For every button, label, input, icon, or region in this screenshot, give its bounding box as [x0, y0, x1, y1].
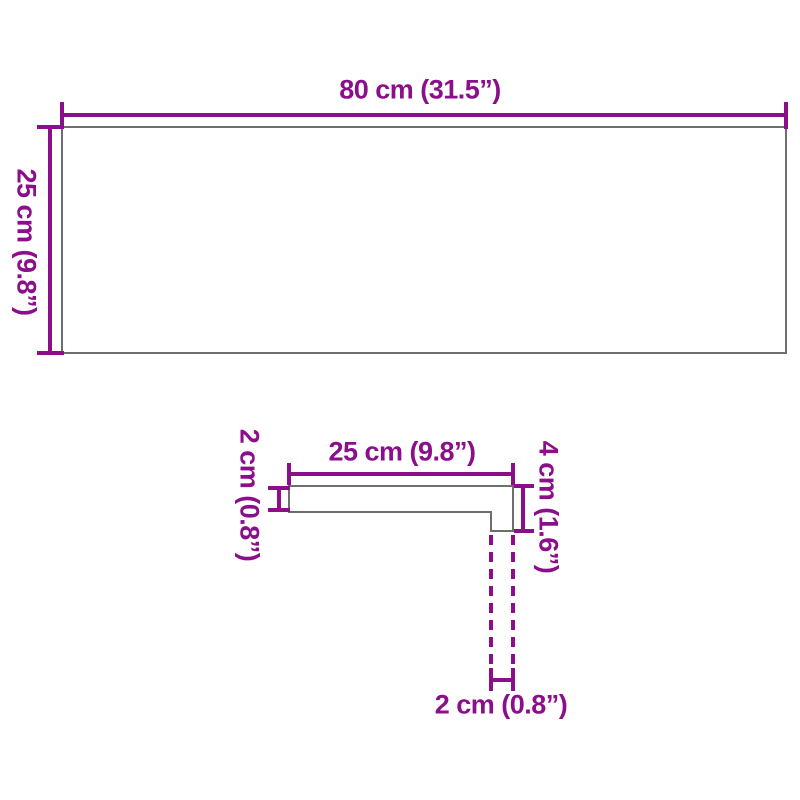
section-thickness-label: 2 cm (0.8”) [236, 429, 263, 562]
nose-width-dimension-line [491, 668, 513, 691]
panel-top-view-outline [62, 127, 786, 353]
top-width-label: 80 cm (31.5”) [339, 77, 501, 104]
diagram-canvas [0, 0, 800, 800]
section-width-label: 25 cm (9.8”) [328, 439, 475, 466]
section-height-label: 4 cm (1.6”) [535, 441, 562, 574]
top-width-dimension-line [62, 102, 786, 129]
top-height-label: 25 cm (9.8”) [13, 168, 40, 315]
nose-projection-dashed-lines [491, 535, 513, 667]
dimension-diagram: 80 cm (31.5”) 25 cm (9.8”) 25 cm (9.8”) … [0, 0, 800, 800]
nose-width-label: 2 cm (0.8”) [435, 692, 568, 719]
section-height-dimension-line [514, 486, 534, 531]
cross-section-outline [289, 486, 513, 531]
cross-section-group [268, 463, 534, 691]
section-thickness-dimension-line [268, 488, 290, 510]
top-view-group [37, 102, 786, 353]
